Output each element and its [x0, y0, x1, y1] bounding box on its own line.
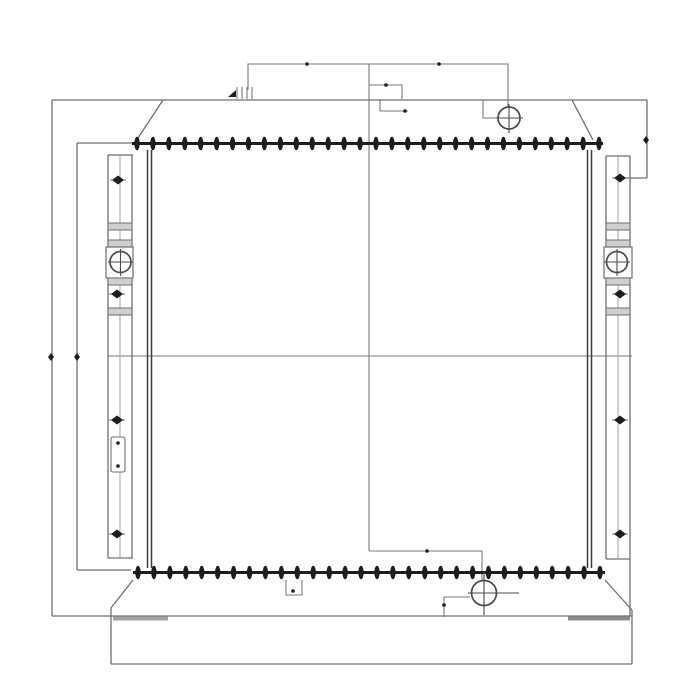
top-fin-bolt: [341, 137, 346, 151]
top-fin-bolt: [150, 137, 155, 151]
diamond-marker: [612, 174, 628, 183]
top-tank-slopes: [138, 100, 593, 140]
top-fin-bolt: [405, 137, 410, 151]
small-arrow-marker: [48, 353, 54, 361]
junction-dot: [116, 464, 120, 468]
bottom-fin-bolt: [295, 566, 300, 580]
diamond-marker-glyph: [614, 174, 626, 183]
bottom-fin-bolt: [151, 566, 156, 580]
bottom-fin-bolt: [565, 566, 570, 580]
diamond-marker: [109, 416, 125, 425]
junction-dot: [425, 549, 429, 553]
bottom-fin-bolt: [518, 566, 523, 580]
top-fin-bolt: [549, 137, 554, 151]
bottom-fin-bolt: [183, 566, 188, 580]
junction-dot: [291, 589, 295, 593]
small-arrow-markers: [48, 136, 649, 361]
diamond-marker-glyph: [112, 176, 124, 185]
junction-dot: [384, 83, 388, 87]
top-fin-bolt: [389, 137, 394, 151]
drain-line: [369, 551, 482, 617]
diamond-marker: [612, 290, 628, 299]
diamond-marker-glyph: [614, 530, 626, 539]
bottom-fin-bolt: [231, 566, 236, 580]
screenshot-canvas: [0, 0, 700, 700]
junction-dot: [442, 603, 446, 607]
drain-port-crosshair: [468, 572, 519, 615]
top-fin-bolt: [278, 137, 283, 151]
bottom-fin-bolt: [550, 566, 555, 580]
top-fin-bolt: [453, 137, 458, 151]
bottom-fin-bolt: [135, 566, 140, 580]
top-fin-bolt: [182, 137, 187, 151]
bottom-fin-bolt: [486, 566, 491, 580]
diamond-marker: [612, 530, 628, 539]
diamond-marker-glyph: [111, 290, 123, 299]
diamond-marker-glyph: [614, 290, 626, 299]
top-fin-bolt: [246, 137, 251, 151]
top-fin-bolt: [310, 137, 315, 151]
bottom-fin-bolt: [581, 566, 586, 580]
top-fin-bolt: [214, 137, 219, 151]
top-fin-bolt: [134, 137, 139, 151]
bottom-fin-bolt: [502, 566, 507, 580]
bottom-fin-bolt: [263, 566, 268, 580]
bottom-fin-bolt: [327, 566, 332, 580]
top-fin-bolt: [198, 137, 203, 151]
top-fin-bolt: [596, 137, 601, 151]
small-arrow-marker: [643, 136, 649, 144]
filler-neck-port: [496, 104, 523, 133]
bottom-fin-bolt: [454, 566, 459, 580]
diamond-marker: [109, 290, 125, 299]
filler-step-line: [483, 100, 497, 118]
bottom-fin-bolt: [311, 566, 316, 580]
junction-dot: [403, 109, 407, 113]
filler-neck-port-crosshair: [496, 104, 523, 133]
bottom-fin-bolt: [167, 566, 172, 580]
bottom-fin-bolt: [438, 566, 443, 580]
top-fin-bolt: [469, 137, 474, 151]
top-fin-bolt: [166, 137, 171, 151]
diamond-marker-glyph: [111, 530, 123, 539]
bottom-tank-and-base: [111, 580, 632, 664]
bottom-fin-bolt: [374, 566, 379, 580]
drain-port: [468, 572, 519, 615]
diamond-marker-glyph: [111, 416, 123, 425]
bottom-fin-bolt: [597, 566, 602, 580]
junction-dot: [437, 62, 441, 66]
top-fin-bolt: [294, 137, 299, 151]
bottom-fin-bolt: [342, 566, 347, 580]
bottom-fin-bolt: [199, 566, 204, 580]
bottom-notch-fitting: [286, 580, 302, 595]
top-fin-bolt: [421, 137, 426, 151]
top-fin-bolt: [564, 137, 569, 151]
junction-dot: [116, 441, 120, 445]
top-fin-bolt: [580, 137, 585, 151]
top-fin-bolt: [373, 137, 378, 151]
junction-dot: [305, 62, 309, 66]
top-fin-bolt: [517, 137, 522, 151]
bottom-fin-bolt: [247, 566, 252, 580]
bottom-fin-bolt: [422, 566, 427, 580]
bottom-fin-bolt: [470, 566, 475, 580]
outer-frame-lines: [52, 100, 647, 616]
radiator-technical-drawing: [0, 0, 700, 700]
top-fin-bolt: [437, 137, 442, 151]
top-fin-bolt: [262, 137, 267, 151]
right-mounting-bracket: [604, 156, 632, 616]
top-fin-bolt: [357, 137, 362, 151]
top-fin-bolt: [485, 137, 490, 151]
top-fin-bolt: [326, 137, 331, 151]
bottom-fin-bolt: [215, 566, 220, 580]
top-fin-bolt: [230, 137, 235, 151]
diamond-marker: [612, 416, 628, 425]
bottom-fin-bolt: [279, 566, 284, 580]
top-sensor-fitting: [369, 85, 408, 111]
top-fin-bolt: [533, 137, 538, 151]
bottom-fin-bolt: [390, 566, 395, 580]
top-fin-bolt: [501, 137, 506, 151]
bottom-fin-bolt: [534, 566, 539, 580]
bottom-fin-bolt: [406, 566, 411, 580]
small-arrow-marker: [74, 353, 80, 361]
diamond-marker: [110, 176, 126, 185]
bottom-fin-bolt: [358, 566, 363, 580]
diamond-marker: [109, 530, 125, 539]
diamond-marker-glyph: [614, 416, 626, 425]
